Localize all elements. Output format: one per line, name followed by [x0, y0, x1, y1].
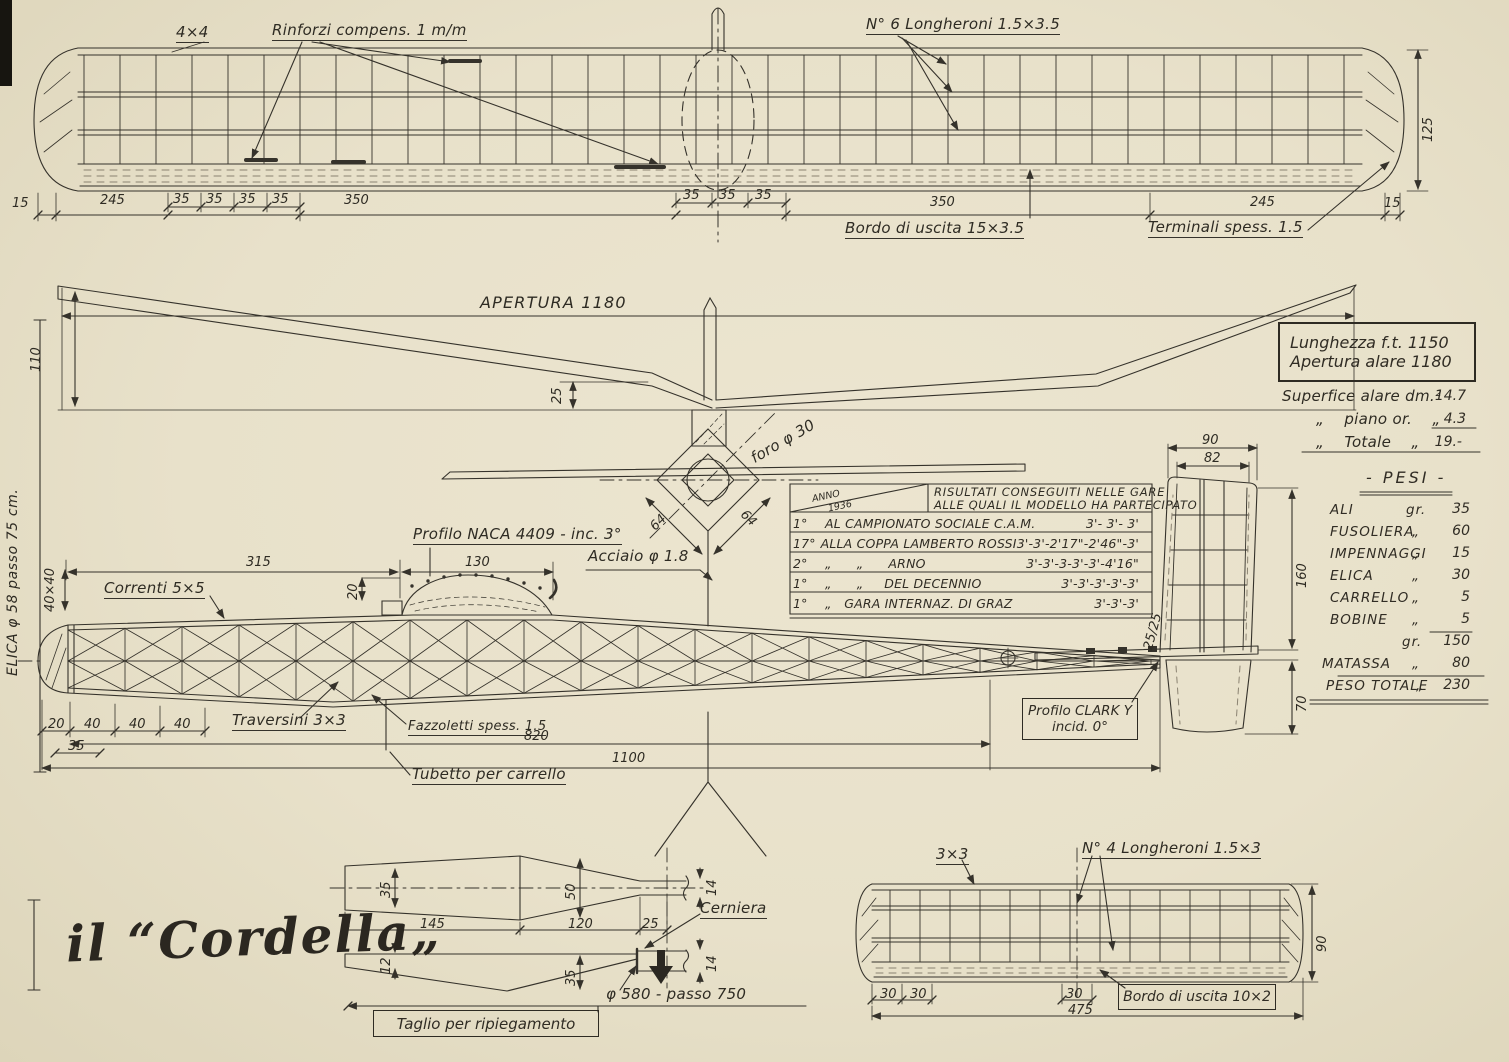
dim-tail-30: 30: [910, 988, 927, 1001]
label-taglio: Taglio per ripiegamento: [397, 1015, 576, 1033]
dim-detail-35: 35: [380, 881, 393, 898]
label-wing-4x4: 4×4: [176, 24, 209, 43]
label-elica-580: φ 580 - passo 750: [606, 986, 746, 1003]
specs-box: Lunghezza f.t. 1150 Apertura alare 1180: [1278, 322, 1476, 382]
dim-top-1: 245: [100, 194, 125, 207]
label-rinforzi: Rinforzi compens. 1 m/m: [272, 22, 467, 41]
dim-top-6: 350: [344, 194, 369, 207]
pesi-unit: „: [1412, 590, 1420, 606]
dim-40x40: 40×40: [44, 568, 57, 612]
pesi-matassa-item: MATASSA: [1322, 656, 1391, 672]
result-event: „ „ ARNO: [825, 556, 926, 571]
pesi-unit: „: [1412, 546, 1420, 562]
dim-top-11: 245: [1250, 196, 1275, 209]
dim-top-3: 35: [206, 193, 223, 206]
label-elica-passo: ELICA φ 58 passo 75 cm.: [6, 489, 20, 676]
dim-fus-35: 35: [68, 740, 85, 753]
dim-fus-20: 20: [48, 718, 65, 731]
pesi-value: 30: [1432, 567, 1470, 583]
label-longheroni-6: N° 6 Longheroni 1.5×3.5: [866, 16, 1060, 35]
dim-110: 110: [30, 347, 43, 372]
result-event: AL CAMPIONATO SOCIALE C.A.M.: [825, 516, 1035, 531]
label-apertura: APERTURA 1180: [480, 294, 627, 312]
surface-row-label: Superfice alare dm.²: [1282, 388, 1441, 405]
dim-fin-82: 82: [1204, 452, 1221, 465]
label-acciaio: Acciaio φ 1.8: [588, 548, 689, 565]
label-profilo-clark: Profilo CLARK Y: [1028, 703, 1132, 719]
pesi-item: FUSOLIERA: [1330, 524, 1415, 540]
surface-row-value: 14.7: [1428, 388, 1466, 404]
dim-315: 315: [246, 556, 271, 569]
label-incid-0: incid. 0°: [1052, 719, 1108, 735]
surface-row-value: 19.-: [1424, 434, 1462, 450]
result-times: 3'-3'-3-3'-3'-4'16": [1026, 556, 1145, 571]
result-times: 3'-3'-3'-3'-3': [1061, 576, 1145, 591]
blueprint-page: 4×4 Rinforzi compens. 1 m/m N° 6 Longher…: [0, 0, 1509, 1062]
dim-130: 130: [465, 556, 490, 569]
pesi-item: ALI: [1330, 502, 1354, 518]
spec-apertura: Apertura alare 1180: [1290, 352, 1474, 371]
pesi-subtotal-value: 150: [1432, 633, 1470, 649]
result-position: 17°: [793, 536, 821, 551]
dim-tail-30: 30: [1066, 988, 1083, 1001]
dim-fus-40: 40: [129, 718, 146, 731]
scan-corner-mark: [0, 0, 12, 86]
pesi-unit: gr.: [1406, 502, 1426, 518]
label-tail-3x3: 3×3: [936, 846, 969, 865]
bordo-label-box: Bordo di uscita 10×2: [1118, 984, 1276, 1010]
pesi-item: ELICA: [1330, 568, 1374, 584]
pesi-value: 5: [1432, 589, 1470, 605]
pesi-total-unit: „: [1416, 678, 1424, 694]
results-row: 1° „ GARA INTERNAZ. DI GRAZ 3'-3'-3': [793, 593, 1145, 613]
label-tubetto: Tubetto per carrello: [412, 766, 566, 785]
dim-tail-90: 90: [1316, 935, 1329, 952]
pesi-subtotal-unit: gr.: [1402, 634, 1422, 650]
pesi-value: 35: [1432, 501, 1470, 517]
dim-top-0: 15: [12, 197, 29, 210]
surface-row-label: „ piano or. „: [1316, 411, 1440, 428]
pesi-total-item: PESO TOTALE: [1326, 678, 1428, 694]
result-position: 1°: [793, 516, 825, 531]
dim-fin-90: 90: [1202, 434, 1219, 447]
results-header-2: ALLE QUALI IL MODELLO HA PARTECIPATO: [934, 500, 1197, 512]
label-bordo-uscita-coda: Bordo di uscita 10×2: [1123, 989, 1271, 1005]
dim-detail-14b: 14: [706, 955, 719, 972]
pesi-item: CARRELLO: [1330, 590, 1409, 606]
result-position: 2°: [793, 556, 825, 571]
label-correnti: Correnti 5×5: [104, 580, 205, 599]
label-cerniera: Cerniera: [700, 900, 767, 919]
pesi-total-value: 230: [1432, 677, 1470, 693]
dim-fin-160: 160: [1296, 563, 1309, 588]
spec-lunghezza: Lunghezza f.t. 1150: [1290, 333, 1474, 352]
dim-fus-40: 40: [84, 718, 101, 731]
dim-detail-35b: 35: [565, 969, 578, 986]
label-terminali: Terminali spess. 1.5: [1148, 219, 1303, 238]
dim-475: 475: [1068, 1004, 1093, 1017]
label-bordo-uscita-ala: Bordo di uscita 15×3.5: [845, 220, 1024, 239]
result-event: „ „ DEL DECENNIO: [825, 576, 982, 591]
surface-row-label: „ Totale „: [1316, 434, 1419, 451]
dim-820: 820: [524, 730, 549, 743]
result-event: „ GARA INTERNAZ. DI GRAZ: [825, 596, 1012, 611]
dim-top-4: 35: [239, 193, 256, 206]
results-row: 1° „ „ DEL DECENNIO 3'-3'-3'-3'-3': [793, 573, 1145, 593]
taglio-label-box: Taglio per ripiegamento: [373, 1010, 599, 1037]
result-times: 3'- 3'- 3': [1086, 516, 1145, 531]
surface-row-value: 4.3: [1428, 411, 1466, 427]
label-traversini: Traversini 3×3: [232, 712, 346, 731]
pesi-unit: „: [1412, 524, 1420, 540]
pesi-matassa-value: 80: [1432, 655, 1470, 671]
dim-tail-30: 30: [880, 988, 897, 1001]
pesi-value: 5: [1432, 611, 1470, 627]
result-position: 1°: [793, 576, 825, 591]
dim-fus-40: 40: [174, 718, 191, 731]
pesi-title: - PESI -: [1366, 468, 1446, 487]
dim-wing-125: 125: [1422, 117, 1435, 142]
label-profilo-naca: Profilo NACA 4409 - inc. 3°: [413, 526, 622, 545]
clark-label-box: Profilo CLARK Y incid. 0°: [1022, 698, 1138, 740]
pesi-value: 60: [1432, 523, 1470, 539]
results-header-1: RISULTATI CONSEGUITI NELLE GARE: [934, 487, 1165, 499]
result-times: 3'-3'-3': [1094, 596, 1145, 611]
dim-25-diedro: 25: [551, 387, 564, 404]
dim-top-5: 35: [272, 193, 289, 206]
pesi-item: BOBINE: [1330, 612, 1388, 628]
result-times: 3'-3'-2'17"-2'46"-3': [1017, 536, 1145, 551]
results-row: 17° ALLA COPPA LAMBERTO ROSSI 3'-3'-2'17…: [793, 533, 1145, 553]
pesi-unit: „: [1412, 612, 1420, 628]
dim-fin-70: 70: [1296, 695, 1309, 712]
dim-top-8: 35: [719, 189, 736, 202]
pesi-value: 15: [1432, 545, 1470, 561]
dim-120: 120: [568, 918, 593, 931]
results-row: 1° AL CAMPIONATO SOCIALE C.A.M. 3'- 3'- …: [793, 513, 1145, 533]
dim-top-2: 35: [173, 193, 190, 206]
dim-25: 25: [642, 918, 659, 931]
dim-1100: 1100: [612, 752, 645, 765]
dim-20-pilone: 20: [347, 583, 360, 600]
pesi-matassa-unit: „: [1412, 656, 1420, 672]
dim-top-12: 15: [1384, 197, 1401, 210]
results-row: 2° „ „ ARNO 3'-3'-3-3'-3'-4'16": [793, 553, 1145, 573]
dim-top-9: 35: [755, 189, 772, 202]
dim-top-10: 350: [930, 196, 955, 209]
dim-detail-50: 50: [565, 883, 578, 900]
result-position: 1°: [793, 596, 825, 611]
dim-top-7: 35: [683, 189, 700, 202]
label-longheroni-4: N° 4 Longheroni 1.5×3: [1082, 840, 1261, 859]
dim-detail-14: 14: [706, 879, 719, 896]
pesi-unit: „: [1412, 568, 1420, 584]
result-event: ALLA COPPA LAMBERTO ROSSI: [821, 536, 1017, 551]
